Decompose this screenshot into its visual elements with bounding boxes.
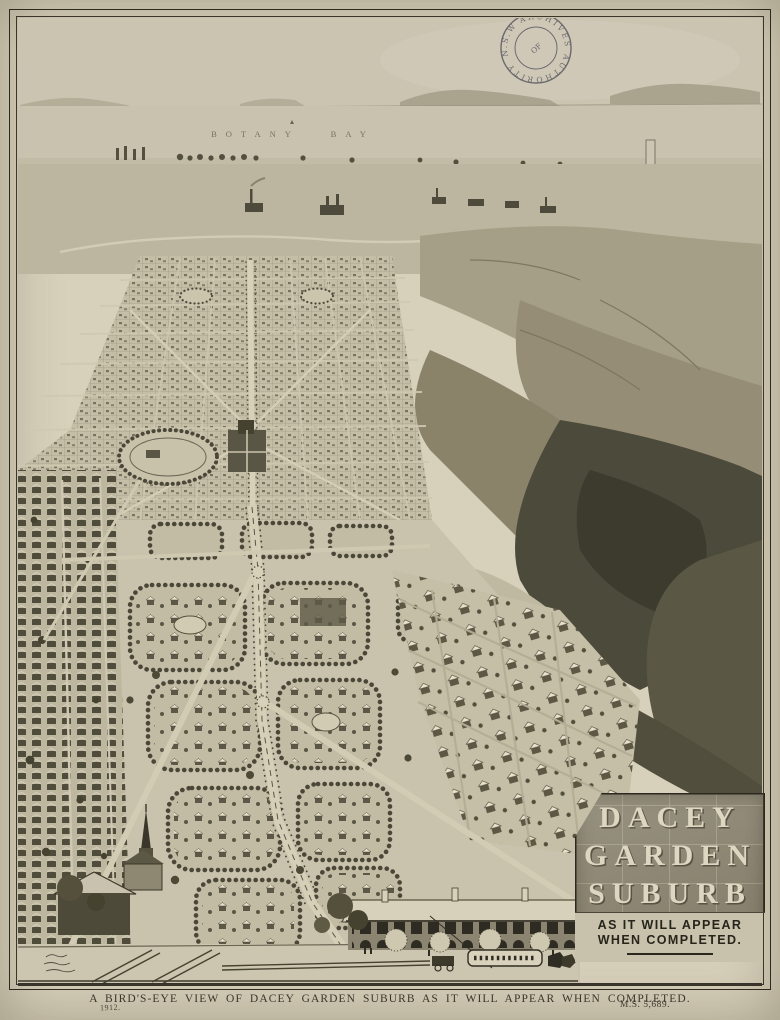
racecourse-oval bbox=[119, 430, 217, 484]
title-box: DACEY GARDEN SUBURB AS IT WILL APPEAR WH… bbox=[575, 793, 765, 962]
title-box-subtitle: AS IT WILL APPEAR WHEN COMPLETED. bbox=[575, 912, 765, 962]
scanned-map-sheet: BOTANY BAY bbox=[0, 0, 780, 1020]
block-green bbox=[300, 598, 346, 626]
caption-bar: 1912. A BIRD'S-EYE VIEW OF DACEY GARDEN … bbox=[18, 987, 762, 1020]
title-line-1: DACEY bbox=[575, 799, 765, 837]
title-line-2: GARDEN bbox=[575, 837, 765, 875]
botany-bay-label: BOTANY BAY bbox=[211, 129, 375, 139]
main-avenue-city bbox=[250, 260, 253, 520]
title-box-letters: DACEY GARDEN SUBURB bbox=[575, 799, 765, 913]
title-line-3: SUBURB bbox=[575, 875, 765, 913]
subtitle-line-2: WHEN COMPLETED. bbox=[575, 933, 765, 948]
subtitle-underline bbox=[627, 953, 713, 955]
subtitle-line-1: AS IT WILL APPEAR bbox=[575, 918, 765, 933]
caption-reference: M.S. 5,689. bbox=[620, 1000, 670, 1010]
